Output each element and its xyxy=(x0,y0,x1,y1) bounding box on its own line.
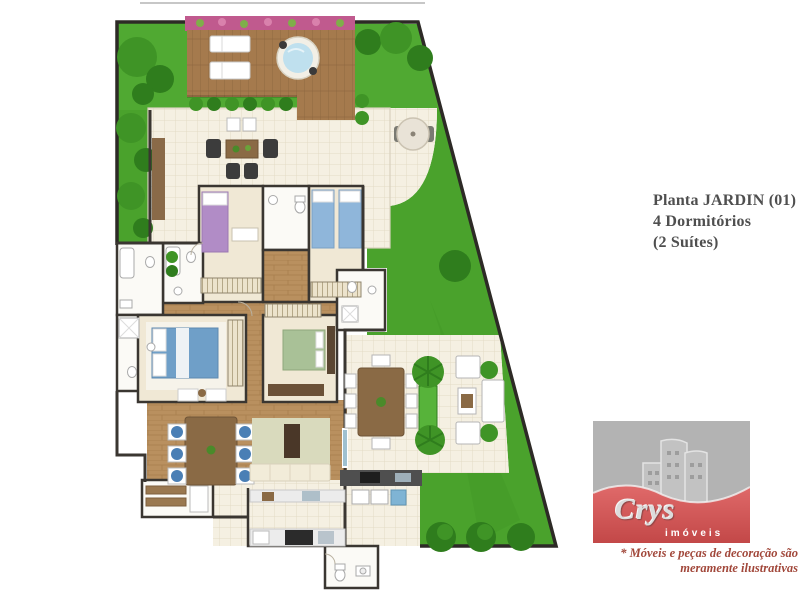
sink xyxy=(302,491,320,501)
disclaimer-line-1: * Móveis e peças de decoração são xyxy=(570,546,798,561)
terrace-chair xyxy=(243,118,256,131)
wardrobe xyxy=(228,320,243,386)
jacuzzi xyxy=(277,37,319,79)
glass-door xyxy=(343,430,347,466)
sun-lounger xyxy=(210,36,250,52)
headboard xyxy=(327,326,335,374)
logo-brand-text: Crys xyxy=(615,493,676,527)
bush xyxy=(480,361,498,379)
laundry-tank xyxy=(391,490,406,505)
logo-subtitle-text: imóveis xyxy=(665,528,723,539)
disclaimer-line-2: meramente ilustrativas xyxy=(570,561,798,576)
planter-bench xyxy=(152,138,165,220)
tv-stand xyxy=(268,384,324,396)
terrace-armchair xyxy=(206,139,221,158)
plan-title: Planta JARDIN (01) xyxy=(653,190,796,211)
dining-room xyxy=(168,417,254,485)
terrace-armchair xyxy=(244,163,258,179)
washer xyxy=(352,490,369,504)
wardrobe xyxy=(265,304,321,317)
doormat xyxy=(206,389,226,401)
coffee-table-top xyxy=(461,394,473,408)
living-room xyxy=(250,418,330,481)
appliance xyxy=(253,531,269,544)
tv-cabinet xyxy=(284,424,300,458)
disclaimer: * Móveis e peças de decoração são merame… xyxy=(570,546,798,576)
closet-hall xyxy=(263,250,309,302)
sun-lounger xyxy=(210,62,250,79)
wardrobe xyxy=(201,278,261,293)
stove xyxy=(285,530,313,545)
terrace-chair xyxy=(227,118,240,131)
plan-suites: (2 Suítes) xyxy=(653,232,796,253)
plan-bedrooms: 4 Dormitórios xyxy=(653,211,796,232)
image-edge-line xyxy=(140,2,425,4)
plan-info-block: Planta JARDIN (01) 4 Dormitórios (2 Suít… xyxy=(653,190,796,253)
appliance xyxy=(318,531,334,544)
terrace-armchair xyxy=(226,163,240,179)
terrace-armchair xyxy=(263,139,278,158)
doormat xyxy=(178,389,198,401)
agency-logo: Crys imóveis xyxy=(593,421,750,543)
washer xyxy=(371,490,388,504)
terrace-table xyxy=(226,140,258,158)
bush xyxy=(480,424,498,442)
desk xyxy=(232,228,258,241)
